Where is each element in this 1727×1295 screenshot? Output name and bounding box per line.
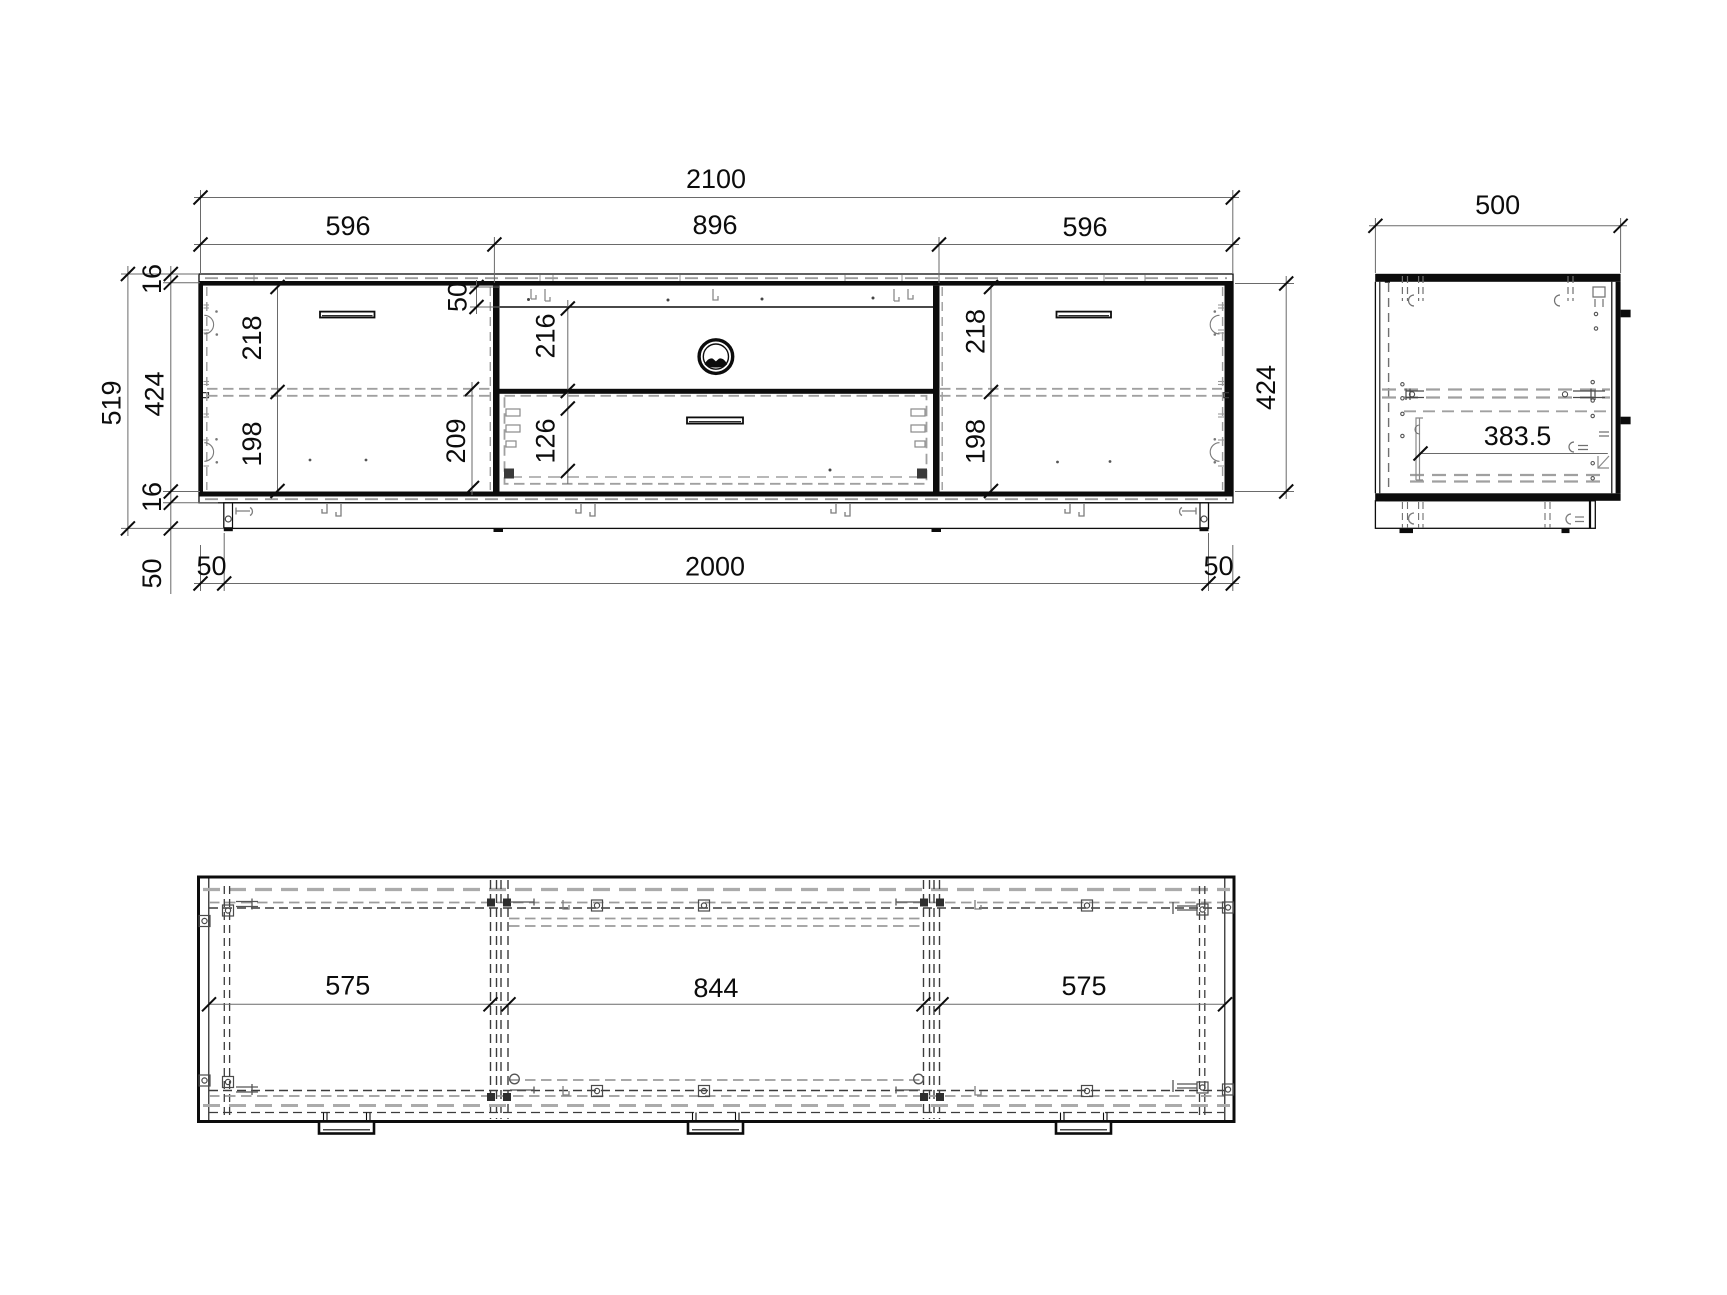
svg-text:198: 198 — [237, 421, 267, 466]
svg-text:198: 198 — [961, 419, 991, 464]
svg-text:2000: 2000 — [685, 552, 745, 582]
svg-text:575: 575 — [325, 971, 370, 1001]
svg-text:424: 424 — [139, 371, 169, 416]
svg-text:218: 218 — [237, 315, 267, 360]
svg-text:16: 16 — [137, 482, 167, 512]
svg-text:896: 896 — [692, 210, 737, 240]
svg-text:596: 596 — [1062, 212, 1107, 242]
svg-text:50: 50 — [1203, 551, 1233, 581]
svg-text:500: 500 — [1475, 190, 1520, 220]
svg-text:2100: 2100 — [686, 164, 746, 194]
svg-text:50: 50 — [443, 282, 473, 312]
svg-text:383.5: 383.5 — [1484, 421, 1552, 451]
svg-text:519: 519 — [97, 380, 127, 425]
svg-text:216: 216 — [531, 313, 561, 358]
svg-text:50: 50 — [137, 558, 167, 588]
svg-text:575: 575 — [1061, 971, 1106, 1001]
svg-text:50: 50 — [196, 551, 226, 581]
svg-text:596: 596 — [325, 211, 370, 241]
svg-text:126: 126 — [531, 418, 561, 463]
svg-text:209: 209 — [441, 418, 471, 463]
svg-text:16: 16 — [137, 264, 167, 294]
svg-text:844: 844 — [693, 973, 738, 1003]
svg-text:424: 424 — [1251, 365, 1281, 410]
svg-text:218: 218 — [961, 309, 991, 354]
